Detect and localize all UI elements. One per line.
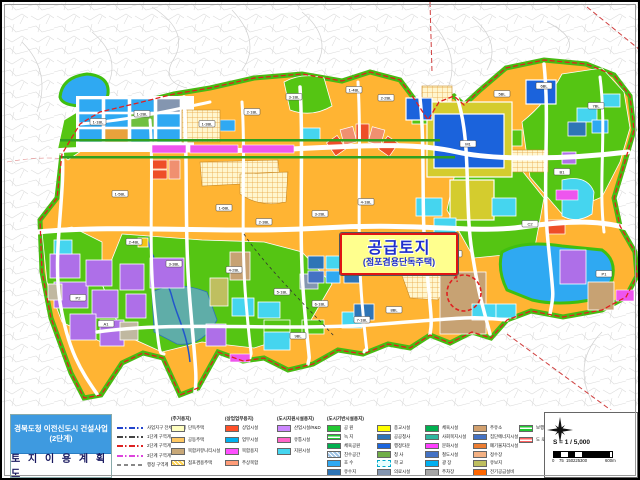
- legend-item: 집단에너지시설: [473, 434, 518, 441]
- project-title: 경북도청 이전신도시 건설사업 (2단계): [11, 415, 111, 454]
- parcel-label-text: 7BL: [592, 103, 600, 108]
- legend-item-label: 사회복지시설: [442, 434, 466, 440]
- parcel-label-text: 2-3BL: [259, 219, 270, 224]
- legend-item: 도 로: [519, 437, 545, 444]
- legend-item-label: 유통시설: [294, 437, 310, 443]
- legend-item: 청 사: [377, 451, 403, 458]
- legend-item: 주상복합: [225, 460, 258, 467]
- legend-swatch: [225, 425, 239, 432]
- legend-swatch: [425, 425, 439, 432]
- legend-item: 유통시설: [277, 437, 310, 444]
- legend-item: 문화시설: [425, 443, 458, 450]
- legend-item-label: 복합용지: [242, 448, 258, 454]
- legend-swatch: [171, 460, 185, 467]
- legend-group-header: (도시지원시설용지): [277, 416, 314, 422]
- legend-item-label: 단독주택: [188, 425, 204, 431]
- supply-callout-title: 공급토지: [368, 241, 431, 258]
- scale-ratio: S = 1 / 5,000: [553, 439, 590, 446]
- legend-swatch: [327, 443, 341, 450]
- legend-item: 업무시설: [225, 437, 258, 444]
- legend-item: 녹 지: [327, 434, 353, 441]
- parcel-label-text: C2: [527, 221, 533, 226]
- legend-swatch: [225, 437, 239, 444]
- legend-item-label: 점포겸용주택: [188, 460, 212, 466]
- legend-swatch: [327, 434, 341, 441]
- boundary-line-item: 3단계 구역계: [117, 452, 171, 460]
- legend-item-label: 공동주택: [188, 437, 204, 443]
- legend-item-label: 청 사: [394, 452, 403, 458]
- legend-item-label: 주차장: [442, 469, 454, 475]
- legend-swatch: [425, 451, 439, 458]
- parcel-label-text: 7-1BL: [357, 317, 368, 322]
- legend-item-label: 폐기물처리시설: [490, 443, 518, 449]
- boundary-line-sample: [117, 464, 143, 466]
- parcel-label-text: 3-2BL: [315, 211, 326, 216]
- legend-item: 철도시설: [425, 451, 458, 458]
- boundary-line-sample: [117, 455, 143, 457]
- scale-tick: 0: [552, 458, 554, 463]
- legend-item: 행정타운: [377, 443, 410, 450]
- legend-item: 점포겸용주택: [171, 460, 212, 467]
- parcel-label-text: 5-1BL: [277, 289, 288, 294]
- legend-swatch: [171, 437, 185, 444]
- legend-strip: 경북도청 이전신도시 건설사업 (2단계) 토 지 이 용 계 획 도 사업지구…: [5, 410, 635, 475]
- legend-item: 정수장: [473, 451, 502, 458]
- legend-swatch: [473, 434, 487, 441]
- legend-item: 유보지: [473, 460, 502, 467]
- legend-swatch: [425, 469, 439, 476]
- parcel-label-text: 4-2BL: [229, 267, 240, 272]
- legend-item: 주차장: [425, 469, 454, 476]
- parcel-label-text: 3-1BL: [289, 94, 300, 99]
- legend-item-label: 지원시설: [294, 448, 310, 454]
- legend-item-label: 체육시설: [442, 425, 458, 431]
- legend-item: 광 장: [425, 460, 451, 467]
- legend-item: 복합커뮤니티시설: [171, 448, 220, 455]
- legend-group-header: (상업업무용지): [225, 416, 253, 422]
- legend-swatch: [327, 469, 341, 476]
- parcel-label-text: 5BL: [498, 91, 506, 96]
- legend-swatch: [425, 460, 439, 467]
- legend-item-label: 복합커뮤니티시설: [188, 448, 220, 454]
- legend-item: 상업시설: [225, 425, 258, 432]
- legend-item: 전기공급설비: [473, 469, 514, 476]
- legend-swatch: [425, 443, 439, 450]
- legend-swatch: [377, 425, 391, 432]
- legend-swatch: [473, 451, 487, 458]
- parcel-label-text: P1: [602, 271, 608, 276]
- scale-tick: 300: [580, 458, 587, 463]
- legend-item-label: 공공청사: [394, 434, 410, 440]
- legend-swatch: [519, 437, 533, 444]
- legend-swatch: [377, 460, 391, 467]
- boundary-line-label: 1단계 구역계: [147, 434, 171, 440]
- legend-swatch: [277, 437, 291, 444]
- parcel-label-text: A1: [104, 321, 110, 326]
- scale-tick-labels: 075150225300600m: [553, 458, 629, 465]
- legend-item: 체육공원: [327, 443, 360, 450]
- legend-item: 종교시설: [377, 425, 410, 432]
- legend-item-label: 광 장: [442, 460, 451, 466]
- boundary-line-item: 행정 구역계: [117, 461, 168, 469]
- scale-tick: 75: [559, 458, 564, 463]
- legend-swatch: [277, 425, 291, 432]
- supply-callout: 공급토지 (점포겸용단독주택): [340, 233, 458, 275]
- parcel-label-text: B1: [560, 169, 566, 174]
- legend-swatch: [377, 443, 391, 450]
- boundary-line-item: 1단계 구역계: [117, 433, 171, 441]
- legend-item-label: 문화시설: [442, 443, 458, 449]
- map-canvas: 1-1BL1-2BL1-3BL2-1BL3-1BL1-4BL2-2BL5BL6B…: [2, 2, 640, 412]
- parcel-label-text: 6BL: [540, 83, 548, 88]
- legend-group-header: (도시기반시설용지): [327, 416, 364, 422]
- legend-item: 단독주택: [171, 425, 204, 432]
- parcel-label-text: 2-4BL: [129, 239, 140, 244]
- scale-bar: [553, 451, 613, 458]
- legend-item-label: 행정타운: [394, 443, 410, 449]
- legend-swatch: [327, 425, 341, 432]
- legend-swatch: [225, 448, 239, 455]
- legend-item-label: 집단에너지시설: [490, 434, 518, 440]
- legend-swatch: [473, 425, 487, 432]
- parcel-label-text: 6-1BL: [315, 301, 326, 306]
- boundary-line-sample: [117, 436, 143, 438]
- scale-end-label: 600m: [605, 458, 616, 463]
- legend-item: 사회복지시설: [425, 434, 466, 441]
- project-title-line2: (2단계): [50, 434, 73, 444]
- parcel-label-text: 2-1BL: [247, 109, 258, 114]
- parcel-label-text: 3-3BL: [169, 261, 180, 266]
- scale-box: S = 1 / 5,000 075150225300600m: [544, 412, 638, 478]
- legend-item-label: 종교시설: [394, 425, 410, 431]
- legend-item: 주유소: [473, 425, 502, 432]
- legend-item: 학 교: [377, 460, 403, 467]
- legend-item-label: 학 교: [394, 460, 403, 466]
- legend-item: 복합용지: [225, 448, 258, 455]
- map-title: 토 지 이 용 계 획 도: [11, 454, 111, 476]
- parcel-label-text: 1-5BL: [115, 191, 126, 196]
- parcel-label-text: 4-1BL: [361, 199, 372, 204]
- legend-item-label: 유수지: [344, 469, 356, 475]
- legend-item-label: 산업시설/R&D: [294, 425, 321, 431]
- legend-item: 친수공간: [327, 451, 360, 458]
- boundary-line-sample: [117, 445, 143, 447]
- legend-item-label: 철도시설: [442, 452, 458, 458]
- legend-swatch: [377, 469, 391, 476]
- legend-swatch: [473, 469, 487, 476]
- legend-item-label: 상업시설: [242, 425, 258, 431]
- boundary-line-item: 2단계 구역계: [117, 442, 171, 450]
- legend-item: 공동주택: [171, 437, 204, 444]
- parcel-label-text: 1-1BL: [93, 119, 104, 124]
- title-block: 경북도청 이전신도시 건설사업 (2단계) 토 지 이 용 계 획 도: [10, 414, 112, 478]
- legend-item: 호 수: [327, 460, 353, 467]
- legend-item-label: 유보지: [490, 460, 502, 466]
- parcel-label-text: 1-6BL: [219, 205, 230, 210]
- legend-item-label: 녹 지: [344, 434, 353, 440]
- boundary-line-label: 행정 구역계: [147, 462, 168, 468]
- legend-item: 지원시설: [277, 448, 310, 455]
- legend-swatch: [519, 425, 533, 432]
- project-title-line1: 경북도청 이전신도시 건설사업: [14, 424, 108, 434]
- legend-item-label: 주상복합: [242, 460, 258, 466]
- land-use-map-sheet: 1-1BL1-2BL1-3BL2-1BL3-1BL1-4BL2-2BL5BL6B…: [0, 0, 640, 480]
- parcel-label-text: 9BL: [294, 333, 302, 338]
- parcel-label-text: P2: [76, 295, 82, 300]
- legend-item: 폐기물처리시설: [473, 443, 518, 450]
- legend-swatch: [425, 434, 439, 441]
- legend-item: 공공청사: [377, 434, 410, 441]
- legend-item-label: 주유소: [490, 425, 502, 431]
- supply-callout-subtitle: (점포겸용단독주택): [363, 258, 435, 267]
- boundary-line-label: 3단계 구역계: [147, 453, 171, 459]
- legend-item-label: 체육공원: [344, 443, 360, 449]
- legend-item-label: 정수장: [490, 452, 502, 458]
- legend-swatch: [327, 451, 341, 458]
- legend-swatch: [327, 460, 341, 467]
- parcel-label-text: M1: [465, 141, 471, 146]
- legend-item-label: 업무시설: [242, 437, 258, 443]
- boundary-line-sample: [117, 427, 143, 429]
- legend-swatch: [377, 434, 391, 441]
- legend-item-label: 전기공급설비: [490, 469, 514, 475]
- legend-item: 체육시설: [425, 425, 458, 432]
- legend-swatch: [171, 425, 185, 432]
- legend-group-header: (주거용지): [171, 416, 191, 422]
- boundary-line-label: 2단계 구역계: [147, 443, 171, 449]
- legend-item-label: 의료시설: [394, 469, 410, 475]
- parcel-label-text: 2-2BL: [381, 95, 392, 100]
- legend-swatch: [473, 443, 487, 450]
- legend-swatch: [171, 448, 185, 455]
- parcel-label-text: 1-3BL: [202, 121, 213, 126]
- parcel-label-text: 1-2BL: [137, 111, 148, 116]
- legend-item: 유수지: [327, 469, 356, 476]
- legend-swatch: [377, 451, 391, 458]
- parcel-label-text: 8BL: [390, 307, 398, 312]
- legend-swatch: [277, 448, 291, 455]
- legend-item-label: 호 수: [344, 460, 353, 466]
- legend-item-label: 공 원: [344, 425, 353, 431]
- legend-item: 의료시설: [377, 469, 410, 476]
- legend-item-label: 친수공간: [344, 452, 360, 458]
- legend-item: 산업시설/R&D: [277, 425, 321, 432]
- parcel-label-text: 1-4BL: [349, 87, 360, 92]
- legend-swatch: [225, 460, 239, 467]
- legend-item: 공 원: [327, 425, 353, 432]
- legend-swatch: [473, 460, 487, 467]
